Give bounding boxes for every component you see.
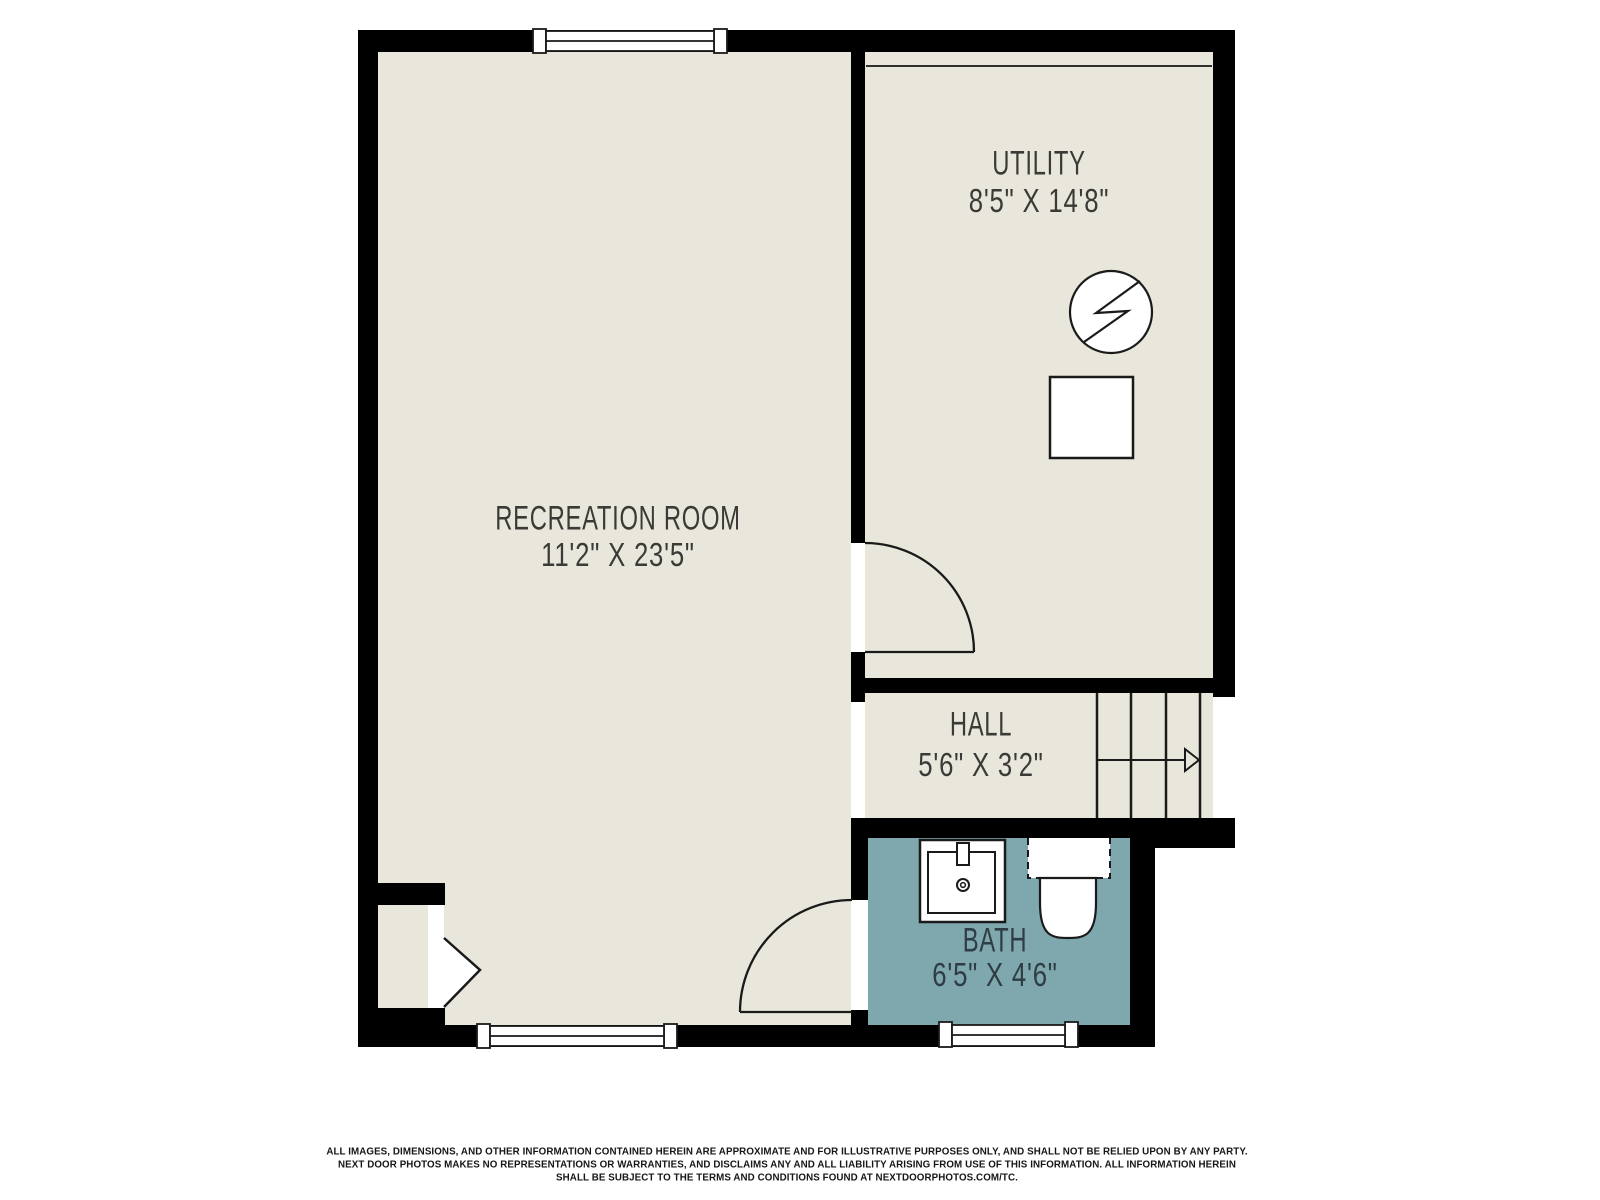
hall-label: HALL [936, 706, 1025, 745]
window-icon-top [533, 29, 727, 53]
hall-dimensions: 5'6" X 3'2" [901, 746, 1062, 784]
room-dims: 8'5" X 14'8" [969, 182, 1110, 220]
wall-bath-left-lower [851, 1010, 868, 1025]
bath-dimensions: 6'5" X 4'6" [915, 956, 1076, 994]
sink-faucet [957, 843, 969, 865]
appliance-square-icon [1050, 377, 1133, 458]
wall-hall-top [851, 678, 1235, 693]
disclaimer-line: SHALL BE SUBJECT TO THE TERMS AND CONDIT… [326, 1172, 1247, 1185]
bath-label: BATH [949, 922, 1041, 961]
toilet-bowl [1040, 878, 1096, 938]
closet-door-opening [428, 905, 444, 1008]
window-icon-bath [939, 1022, 1078, 1047]
disclaimer-line: NEXT DOOR PHOTOS MAKES NO REPRESENTATION… [326, 1159, 1247, 1172]
room-name: RECREATION ROOM [495, 500, 740, 539]
recreation-room-dimensions: 11'2" X 23'5" [519, 536, 716, 574]
toilet-tank [1028, 838, 1110, 878]
wall-closet-stub-bottom [358, 1008, 445, 1025]
wall-rec-utility-divider [851, 52, 865, 543]
wall-right-utility [1213, 30, 1235, 697]
utility-room-dimensions: 8'5" X 14'8" [949, 182, 1129, 220]
window-icon-recreation-bottom [477, 1024, 677, 1048]
room-name: BATH [963, 922, 1028, 961]
sink-icon [920, 840, 1005, 922]
wall-closet-stub-top [358, 883, 445, 905]
floor-plan-drawing [0, 0, 1600, 1200]
wall-hall-bottom [851, 818, 1155, 838]
room-dims: 6'5" X 4'6" [932, 956, 1057, 994]
room-dims: 11'2" X 23'5" [541, 536, 695, 574]
floor-plan-page: RECREATION ROOM 11'2" X 23'5" UTILITY 8'… [0, 0, 1600, 1200]
wall-divider-stub [851, 652, 865, 702]
sink-drain [957, 879, 969, 891]
wall-stair-corner [1155, 818, 1235, 848]
disclaimer-line: ALL IMAGES, DIMENSIONS, AND OTHER INFORM… [326, 1146, 1247, 1159]
room-dims: 5'6" X 3'2" [918, 746, 1043, 784]
room-name: HALL [950, 706, 1012, 745]
wall-top [358, 30, 1235, 52]
room-name: UTILITY [992, 145, 1086, 184]
recreation-room-label: RECREATION ROOM [443, 500, 794, 539]
utility-room-label: UTILITY [972, 145, 1106, 184]
disclaimer: ALL IMAGES, DIMENSIONS, AND OTHER INFORM… [326, 1146, 1247, 1185]
wall-bath-right [1130, 838, 1155, 1047]
